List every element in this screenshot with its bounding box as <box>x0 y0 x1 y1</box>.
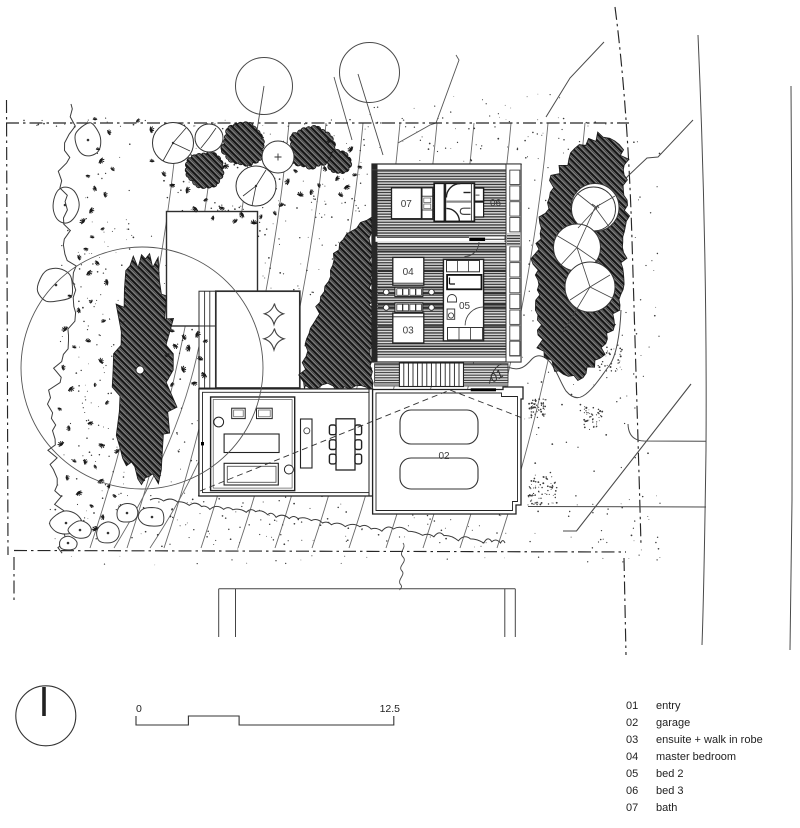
svg-text:04: 04 <box>626 751 638 763</box>
svg-text:bed 2: bed 2 <box>656 768 684 780</box>
svg-text:master bedroom: master bedroom <box>656 751 736 763</box>
svg-text:07: 07 <box>401 199 413 210</box>
svg-text:0: 0 <box>136 703 142 715</box>
svg-text:06: 06 <box>626 785 638 797</box>
svg-text:02: 02 <box>438 451 450 462</box>
svg-text:bed 3: bed 3 <box>656 785 684 797</box>
svg-text:entry: entry <box>656 700 681 712</box>
svg-text:05: 05 <box>459 301 471 312</box>
svg-text:03: 03 <box>403 326 415 337</box>
svg-text:06: 06 <box>490 198 502 209</box>
svg-text:05: 05 <box>626 768 638 780</box>
svg-text:02: 02 <box>626 717 638 729</box>
svg-text:garage: garage <box>656 717 690 729</box>
svg-text:03: 03 <box>626 734 638 746</box>
svg-text:07: 07 <box>626 802 638 814</box>
svg-text:04: 04 <box>403 267 415 278</box>
svg-text:01: 01 <box>626 700 638 712</box>
svg-text:ensuite + walk in robe: ensuite + walk in robe <box>656 734 763 746</box>
svg-text:12.5: 12.5 <box>380 703 401 715</box>
svg-text:bath: bath <box>656 802 677 814</box>
